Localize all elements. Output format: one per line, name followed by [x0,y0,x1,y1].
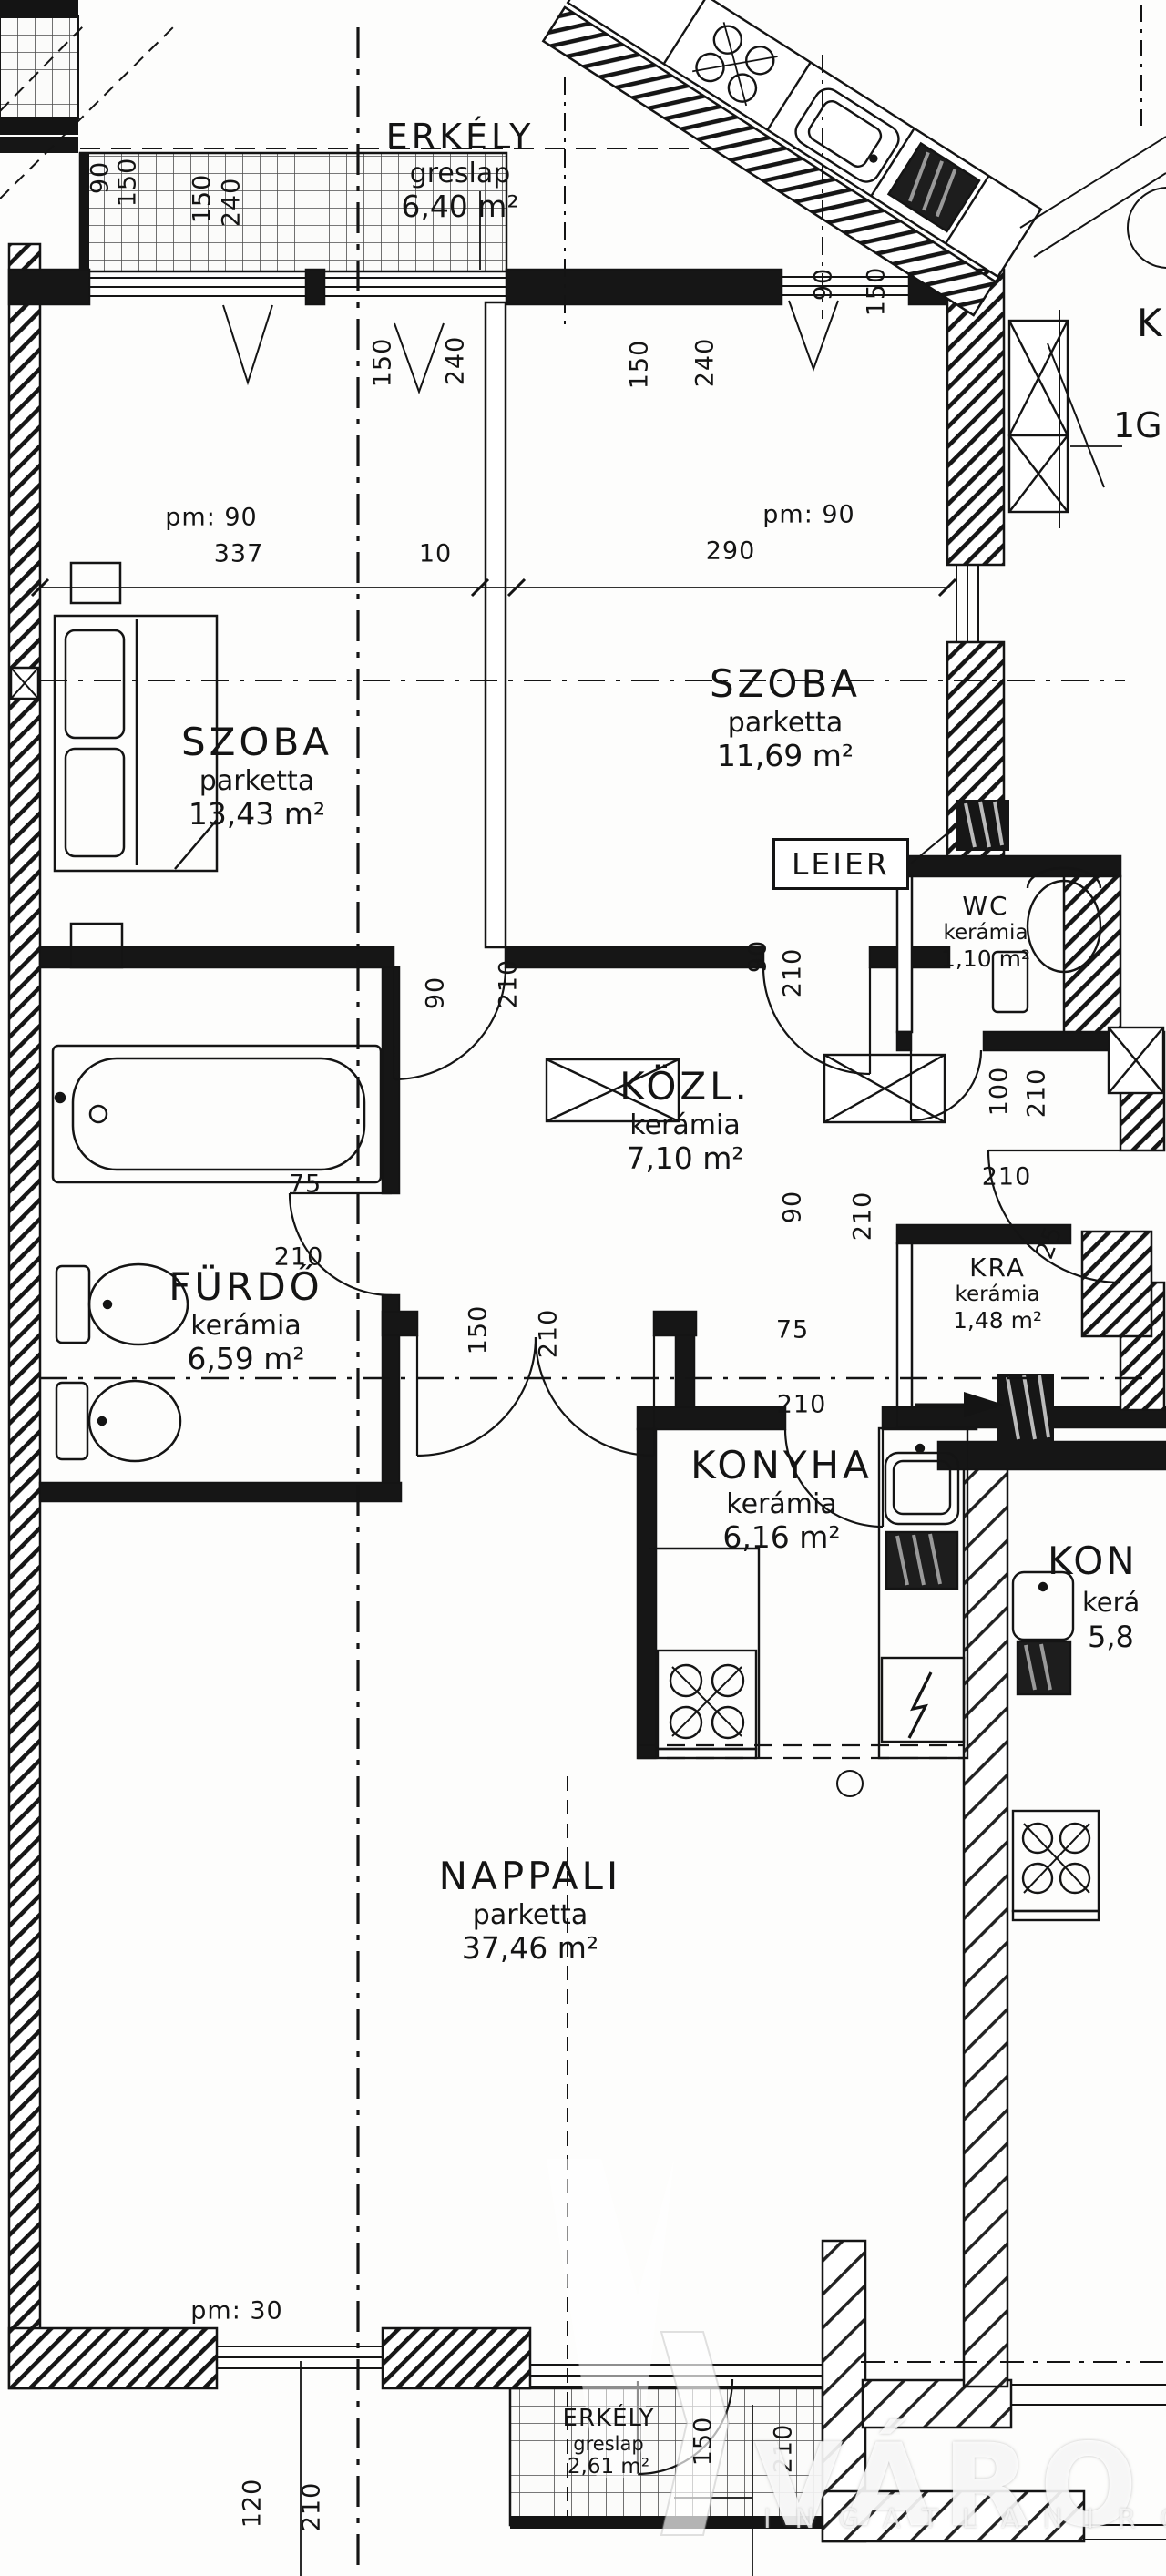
neighbor-diagonal-counter [568,0,1041,277]
dim-label: 210 [777,1391,827,1419]
room-label-bedroom-left: SZOBA parketta 13,43 m² [181,720,332,833]
dim-label: 10 [419,540,452,568]
floor-plan-canvas: ERKÉLY greslap 6,40 m² SZOBA parketta 13… [0,0,1166,2576]
dim-label: 290 [706,537,756,566]
dim-label: 150 [863,267,891,317]
dim-label: 240 [691,338,720,388]
dim-label: 150 [114,158,142,208]
dim-label: 100 [986,1067,1014,1117]
bathtub [53,1046,381,1182]
room-label-wc: WC kerámia 1,10 m² [941,891,1030,973]
dim-label: 150 [465,1305,493,1355]
dim-label: 75 [776,1316,809,1344]
partial-label-1g: 1G [1113,405,1162,445]
door-bedroom-left [394,967,506,1079]
room-label-living: NAPPALI parketta 37,46 m² [439,1854,622,1967]
dim-label: 150 [189,174,217,224]
top-left-terrace-fragment [0,0,78,153]
room-label-hall: KÖZL. kerámia 7,10 m² [619,1064,751,1177]
dim-label: 150 [690,2417,718,2467]
dim-label: 120 [239,2479,267,2529]
dim-label: 90 [87,161,115,194]
dim-label: 210 [298,2482,326,2532]
dim-label: 240 [218,178,246,228]
dim-label: 337 [214,540,264,568]
partial-label-k: K [1137,301,1162,345]
dim-label: 210 [1023,1068,1051,1119]
dim-label: pm: 30 [190,2297,282,2326]
dim-label: pm: 90 [762,501,854,529]
dim-label: 150 [626,340,654,390]
dim-label: 150 [369,338,397,388]
dim-label: 210 [982,1163,1032,1191]
dim-label: pm: 90 [165,504,257,532]
fridge-icon [882,1658,964,1742]
dim-label: 210 [535,1309,563,1359]
room-label-pantry: KRA kerámia 1,48 m² [953,1252,1042,1334]
dim-label: 240 [442,336,470,386]
leier-callout: LEIER [772,838,909,890]
room-label-balcony-top: ERKÉLY greslap 6,40 m² [386,117,535,225]
dim-label: 75 [289,1170,322,1199]
neighbor-stove-icon [1013,1811,1099,1920]
dim-label: 210 [779,948,807,998]
room-label-bathroom: FÜRDŐ kerámia 6,59 m² [169,1264,322,1377]
dim-label: 210 [849,1191,877,1242]
dim-label: 210 [274,1243,324,1272]
room-label-neighbor-kitchen: KON kerá 5,8 [1048,1538,1140,1655]
stove-icon [658,1651,756,1758]
dim-label: 90 [810,268,838,301]
dim-label: 90 [744,940,772,973]
dim-label: 210 [495,959,523,1009]
room-label-kitchen: KONYHA kerámia 6,16 m² [690,1443,873,1556]
neighbor-kitchen-fixtures [1007,1549,1166,2540]
room-label-bedroom-right: SZOBA parketta 11,69 m² [710,661,861,774]
dim-label: 90 [422,976,450,1009]
sink-bathroom [56,1381,180,1461]
dim-label: 90 [779,1191,807,1223]
lightning-icon [909,1672,931,1738]
watermark-subtitle: INGATLANIRODA [763,2503,1166,2534]
room-label-balcony-bottom: ERKÉLY greslap 2,61 m² [563,2405,655,2480]
